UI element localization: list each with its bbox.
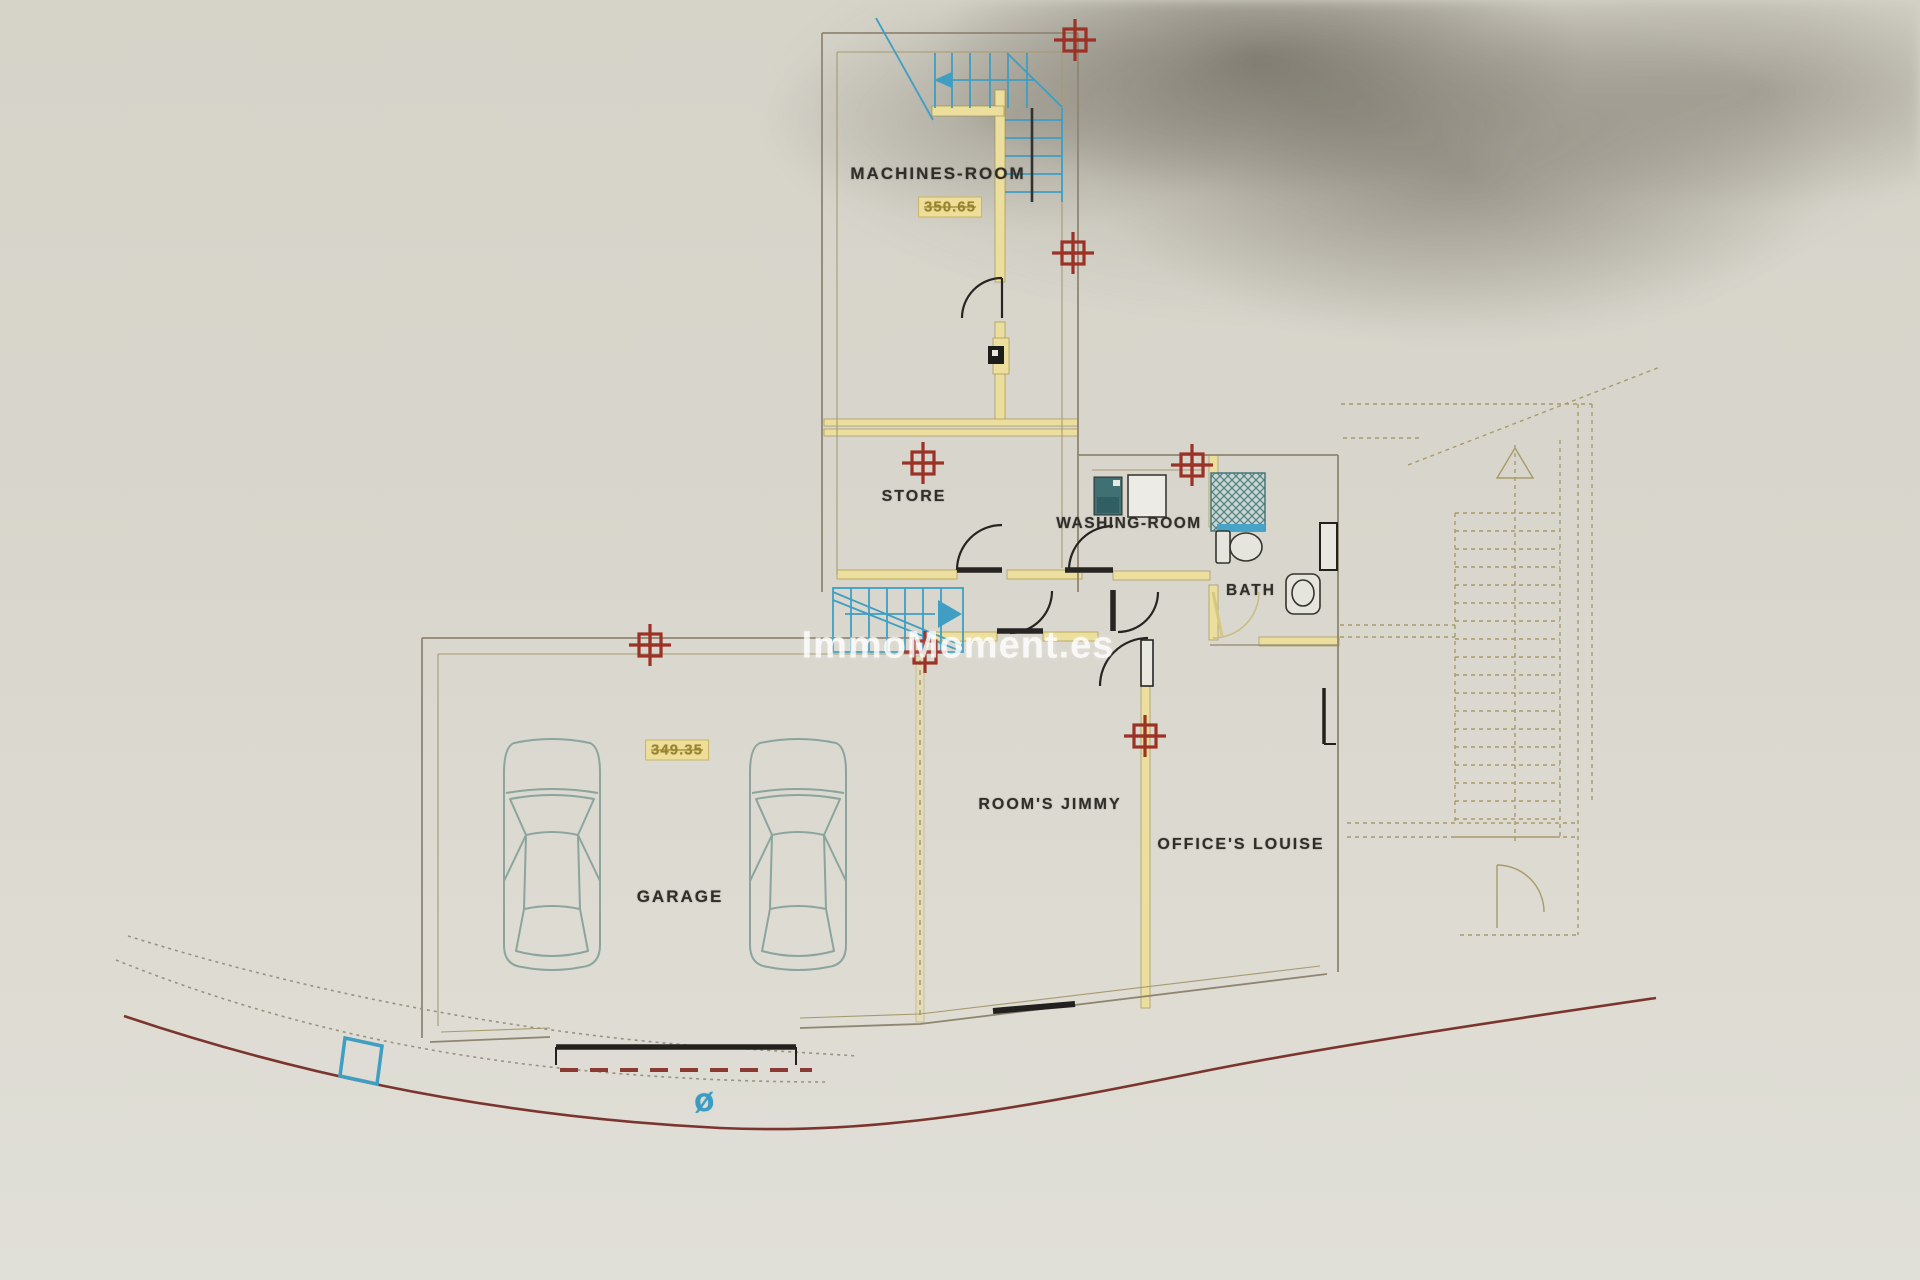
exterior-terrace-stairs	[1340, 367, 1660, 935]
sink	[1286, 574, 1320, 614]
road-curve	[124, 998, 1656, 1129]
bath-door	[1213, 592, 1259, 638]
highlighted-walls	[824, 90, 1339, 1022]
survey-marker-icon	[629, 624, 671, 666]
toilet	[1216, 531, 1262, 563]
south-window	[993, 1004, 1075, 1011]
blue-square-marker	[340, 1038, 382, 1084]
survey-marker-icon	[1124, 715, 1166, 757]
wall-lines	[422, 33, 1338, 1042]
lower-staircase	[833, 588, 963, 652]
cars	[504, 739, 846, 970]
site-symbols	[340, 1038, 382, 1084]
survey-markers	[629, 19, 1213, 757]
bath-fixtures	[1211, 473, 1320, 614]
car-left	[504, 739, 600, 970]
stair-treads	[1455, 513, 1560, 837]
survey-marker-icon	[1171, 444, 1213, 486]
east-window	[1320, 523, 1337, 570]
survey-marker-icon	[1052, 232, 1094, 274]
car-right	[750, 739, 846, 970]
shower	[1211, 473, 1265, 531]
survey-marker-icon	[902, 442, 944, 484]
floor-plan-scan: MACHINES-ROOM 350.65 STORE WASHING-ROOM …	[0, 0, 1920, 1280]
floor-plan-drawing	[0, 0, 1920, 1280]
washing-room-fixtures	[1094, 475, 1166, 517]
counter	[1128, 475, 1166, 517]
openings	[556, 523, 1337, 1065]
survey-marker-icon	[1054, 19, 1096, 61]
driveway-curves	[116, 936, 1656, 1129]
